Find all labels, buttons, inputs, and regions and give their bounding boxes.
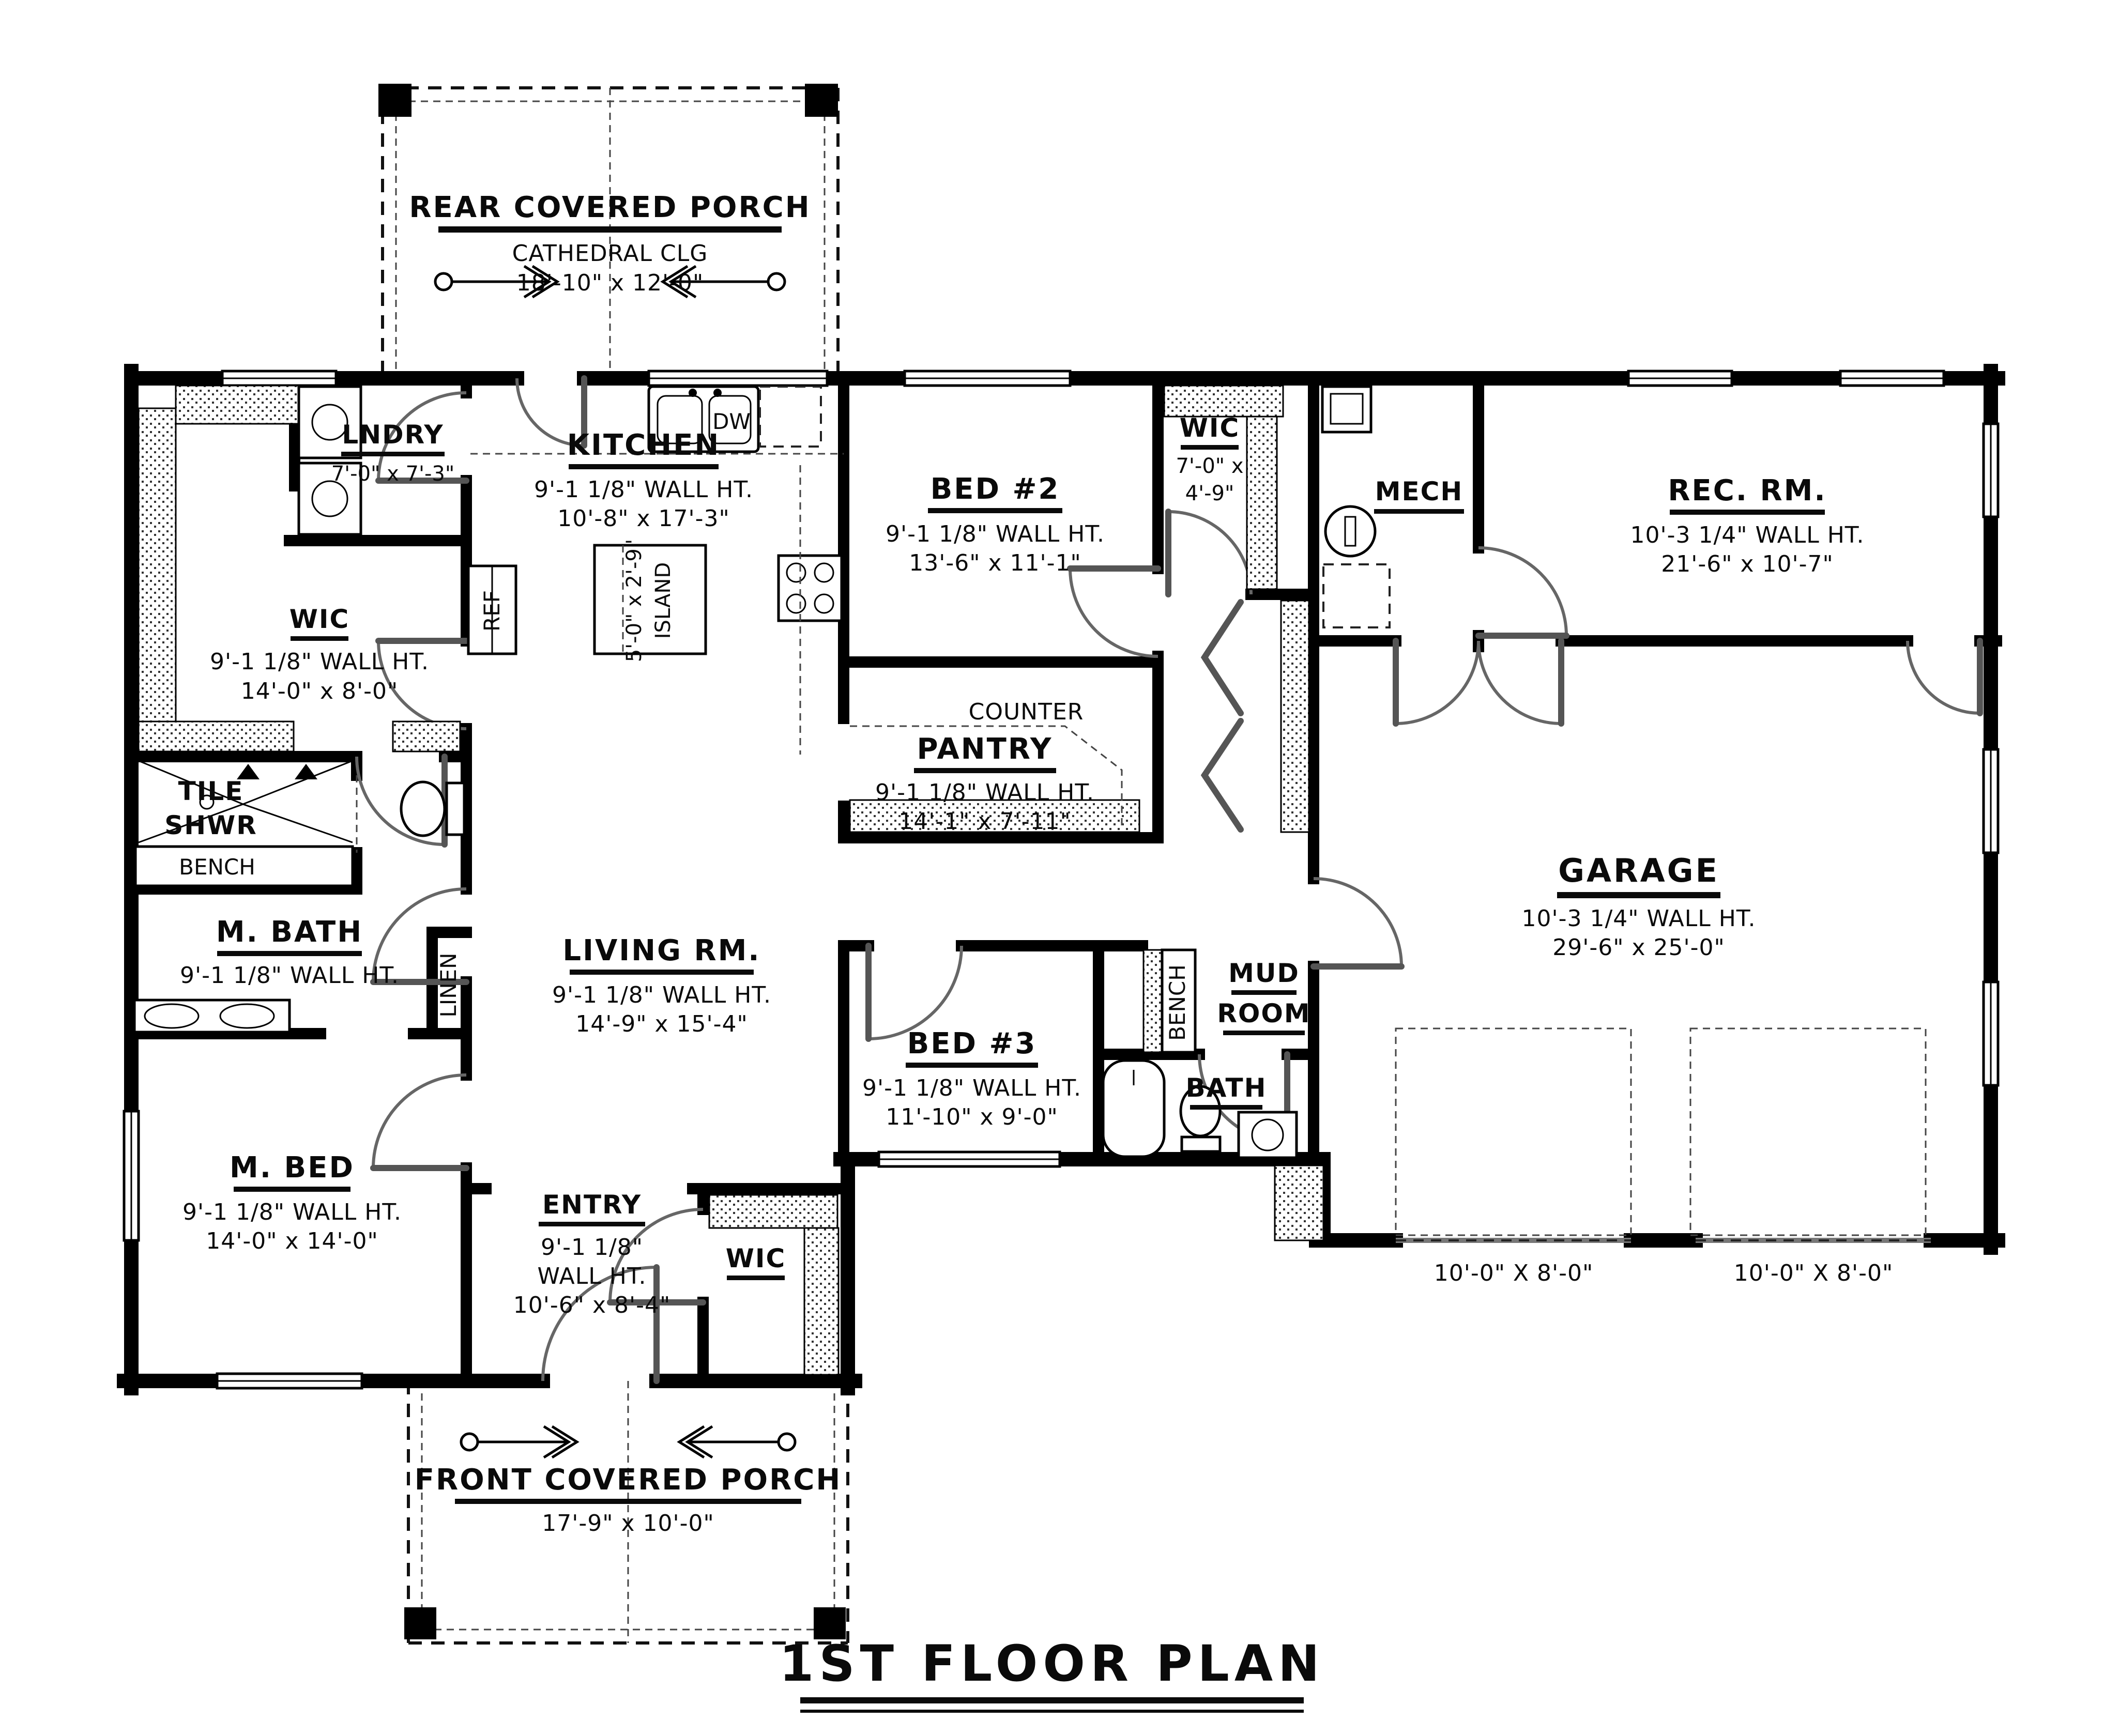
living-title: LIVING RM. xyxy=(562,934,760,967)
garage-door1-dims: 10'-0" X 8'-0" xyxy=(1434,1260,1594,1286)
door-bed3 xyxy=(868,946,962,1039)
window xyxy=(124,1111,139,1240)
pantry-wall-ht: 9'-1 1/8" WALL HT. xyxy=(875,779,1094,806)
kitchen-title: KITCHEN xyxy=(567,428,721,462)
wic-entry-title: WIC xyxy=(726,1243,786,1273)
mud-bench-label: BENCH xyxy=(1165,964,1190,1041)
bath-title: BATH xyxy=(1186,1073,1267,1103)
entry-dims: 10'-6" x 8'-4" xyxy=(513,1292,670,1318)
rec-rm-title: REC. RM. xyxy=(1668,474,1826,508)
kitchen-dims: 10'-8" x 17'-3" xyxy=(557,505,729,532)
mbath-title: M. BATH xyxy=(216,915,363,949)
mud-line2: ROOM xyxy=(1217,998,1310,1028)
mech-sink-icon xyxy=(1322,387,1371,432)
living-wall-ht: 9'-1 1/8" WALL HT. xyxy=(552,982,771,1008)
refrigerator-label: REF xyxy=(479,590,505,632)
closet-bifold-doors xyxy=(1205,602,1241,829)
rec-rm-wall-ht: 10'-3 1/4" WALL HT. xyxy=(1630,522,1865,548)
wic-bed2-dims1: 7'-0" x xyxy=(1176,454,1243,478)
window xyxy=(649,371,827,386)
garage-door2-dims: 10'-0" X 8'-0" xyxy=(1734,1260,1894,1286)
lndry-dims: 7'-0" x 7'-3" xyxy=(331,462,455,486)
arrow-left-icon xyxy=(461,1426,577,1457)
rear-porch-ceiling: CATHEDRAL CLG xyxy=(512,240,708,267)
arrow-right-icon xyxy=(679,1426,795,1457)
water-heater-icon xyxy=(1325,506,1375,556)
bed3-title: BED #3 xyxy=(907,1027,1037,1061)
island-label: ISLAND xyxy=(651,562,675,639)
garage-wall-ht: 10'-3 1/4" WALL HT. xyxy=(1522,905,1756,932)
kitchen-wall-ht: 9'-1 1/8" WALL HT. xyxy=(534,477,753,503)
mbath-toilet-icon xyxy=(401,782,464,836)
tile-shwr-line1: TILE xyxy=(178,776,244,806)
linen-label: LINEN xyxy=(436,953,461,1017)
kitchen-island xyxy=(594,545,706,654)
window xyxy=(905,371,1070,386)
wic-bed2-title: WIC xyxy=(1180,413,1240,443)
bed3-wall-ht: 9'-1 1/8" WALL HT. xyxy=(862,1075,1081,1101)
door-garage-mud xyxy=(1314,879,1401,966)
bed2-wall-ht: 9'-1 1/8" WALL HT. xyxy=(886,521,1105,547)
wic-master-title: WIC xyxy=(289,604,349,634)
washer-dryer-icon xyxy=(299,387,361,534)
front-porch-dims: 17'-9" x 10'-0" xyxy=(542,1510,714,1537)
mech-title: MECH xyxy=(1375,477,1463,506)
door-garage-double-left xyxy=(1396,641,1478,724)
counter-label: COUNTER xyxy=(969,699,1084,725)
plan-title: 1ST FLOOR PLAN xyxy=(780,1635,1325,1693)
entry-title: ENTRY xyxy=(542,1190,642,1220)
entry-wall-ht-1: 9'-1 1/8" xyxy=(541,1234,643,1261)
garage-dims: 29'-6" x 25'-0" xyxy=(1552,934,1725,961)
rec-rm-dims: 21'-6" x 10'-7" xyxy=(1661,551,1833,577)
mbath-vanity-icon xyxy=(134,1000,289,1032)
range-icon xyxy=(779,556,842,621)
door-bed2 xyxy=(1070,569,1158,656)
garage-title: GARAGE xyxy=(1558,852,1719,889)
door-mbed xyxy=(373,1075,466,1168)
labels: REAR COVERED PORCH CATHEDRAL CLG 18'-10"… xyxy=(164,191,1893,1713)
pantry-dims: 14'-1" x 7'-11" xyxy=(898,808,1071,835)
window xyxy=(1840,371,1944,386)
bed3-dims: 11'-10" x 9'-0" xyxy=(886,1104,1058,1130)
island-dims: 5'-0" x 2'-9" xyxy=(622,539,646,663)
living-dims: 14'-9" x 15'-4" xyxy=(575,1011,748,1037)
garage-stall-1 xyxy=(1396,1028,1631,1235)
mud-line1: MUD xyxy=(1228,958,1300,988)
window xyxy=(1628,371,1732,386)
dishwasher-label: DW xyxy=(712,409,751,434)
garage-stall-2 xyxy=(1690,1028,1926,1235)
window xyxy=(1984,424,1998,517)
dishwasher-icon xyxy=(760,387,821,447)
mbed-wall-ht: 9'-1 1/8" WALL HT. xyxy=(182,1199,402,1225)
window xyxy=(879,1152,1060,1166)
entry-wall-ht-2: WALL HT. xyxy=(538,1263,647,1289)
floor-plan-page: REAR COVERED PORCH CATHEDRAL CLG 18'-10"… xyxy=(0,0,2104,1736)
bath-tub-icon xyxy=(1103,1061,1164,1157)
bed2-title: BED #2 xyxy=(931,472,1060,506)
door-rec-rm xyxy=(1478,548,1566,636)
wic-master-wall-ht: 9'-1 1/8" WALL HT. xyxy=(210,649,429,675)
pantry-title: PANTRY xyxy=(917,732,1053,766)
window xyxy=(222,371,336,386)
door-rec-garage xyxy=(1908,641,1980,713)
floor-plan-drawing: REAR COVERED PORCH CATHEDRAL CLG 18'-10"… xyxy=(0,0,2104,1736)
mech-equip-dashed xyxy=(1323,564,1390,627)
rear-porch-title: REAR COVERED PORCH xyxy=(409,191,811,224)
wic-bed2-dims2: 4'-9" xyxy=(1185,482,1234,505)
tile-shwr-line2: SHWR xyxy=(164,810,257,840)
mbed-dims: 14'-0" x 14'-0" xyxy=(206,1228,378,1254)
door-wic-bed2 xyxy=(1168,512,1251,594)
rear-porch-dims: 18'-10" x 12'-0" xyxy=(516,270,704,296)
window xyxy=(1984,749,1998,853)
mbed-title: M. BED xyxy=(230,1151,355,1185)
lndry-title: LNDRY xyxy=(342,420,444,450)
bath-sink-icon xyxy=(1239,1112,1297,1158)
door-garage-double-right xyxy=(1478,641,1561,724)
shower-bench-label: BENCH xyxy=(179,854,255,880)
wic-master-dims: 14'-0" x 8'-0" xyxy=(241,678,398,704)
bed2-dims: 13'-6" x 11'-1" xyxy=(909,550,1081,576)
window xyxy=(217,1374,362,1388)
mbath-wall-ht: 9'-1 1/8" WALL HT. xyxy=(180,962,399,989)
window xyxy=(1984,982,1998,1085)
front-porch-title: FRONT COVERED PORCH xyxy=(415,1463,842,1497)
